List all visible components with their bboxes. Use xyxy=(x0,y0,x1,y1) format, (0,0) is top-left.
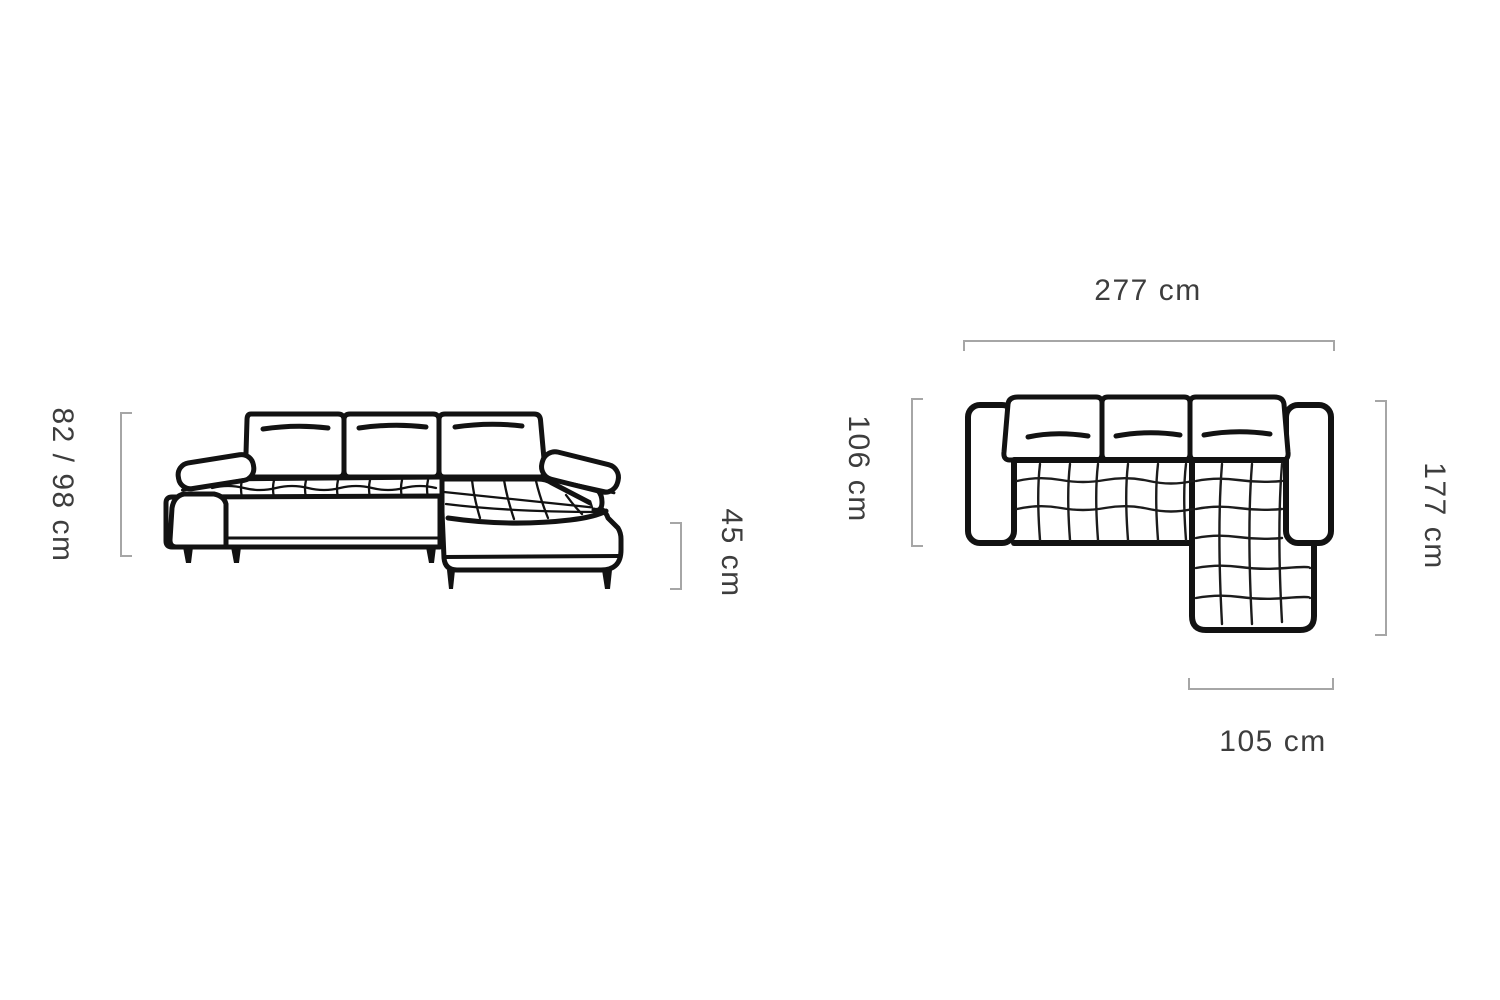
top-length-dimension-label: 177 cm xyxy=(1417,462,1451,569)
chaise-width-bracket xyxy=(1188,678,1334,690)
seat-height-dimension-label: 45 cm xyxy=(714,508,748,597)
top-width-dimension-label: 277 cm xyxy=(1094,274,1201,308)
dimension-diagram: 82 / 98 cm 45 cm 277 cm 106 cm 177 cm 10… xyxy=(0,0,1500,1000)
top-length-bracket xyxy=(1375,400,1387,636)
sofa-front-view-drawing xyxy=(150,400,710,600)
seat-height-bracket xyxy=(670,522,682,590)
top-depth-bracket xyxy=(911,398,923,547)
front-height-dimension-label: 82 / 98 cm xyxy=(45,407,79,562)
top-right-armrest xyxy=(1286,405,1331,543)
sofa-top-view-drawing xyxy=(940,380,1360,660)
chaise-width-dimension-label: 105 cm xyxy=(1219,725,1326,759)
top-back-cushions xyxy=(1004,397,1288,460)
front-back-cushions xyxy=(245,414,545,477)
top-depth-dimension-label: 106 cm xyxy=(841,415,875,522)
front-height-bracket xyxy=(120,412,132,557)
top-width-bracket xyxy=(963,340,1335,351)
